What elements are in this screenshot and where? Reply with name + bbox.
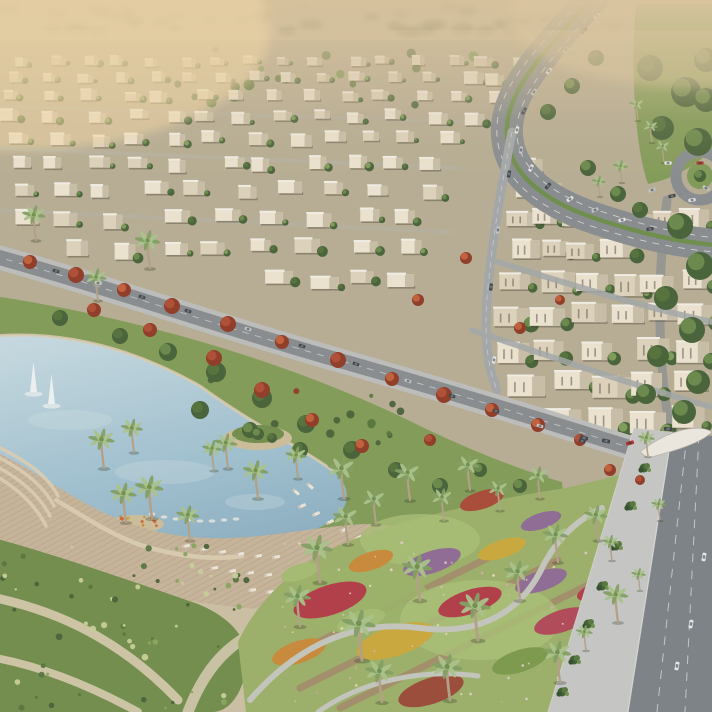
community-aerial-image [0,0,712,712]
scene-svg [0,0,712,712]
warm-tint [0,0,712,712]
scene-root [0,0,712,712]
